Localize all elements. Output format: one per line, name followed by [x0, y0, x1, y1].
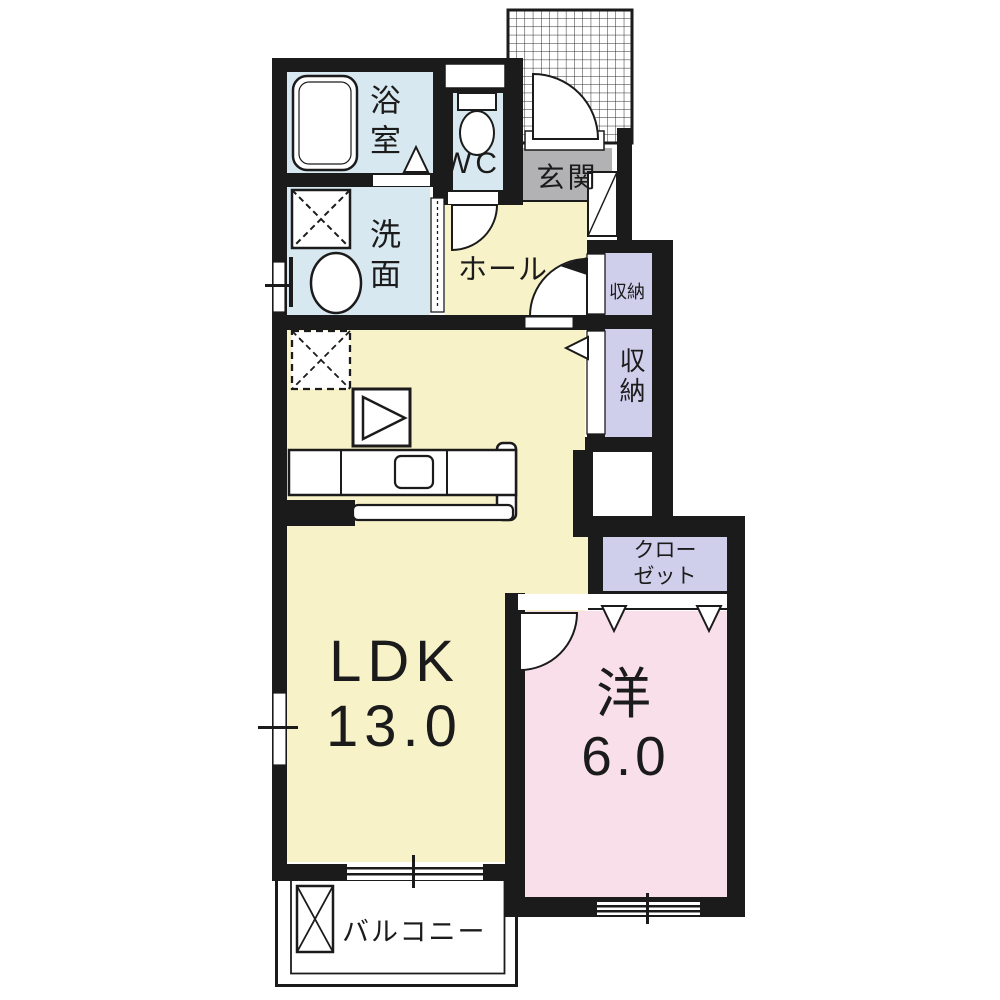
entrance-label: 玄関 [523, 156, 612, 196]
wall-wc-right [503, 58, 523, 205]
western-label-name: 洋 [533, 664, 718, 726]
window-tick [412, 855, 415, 888]
wall-storage-bottom [585, 437, 652, 452]
washing-machine-space-icon [292, 190, 350, 248]
floor-plan: 浴室 WC 玄関 洗面 ホール 収納 収納 クロー ゼット LDK 13.0 洋… [0, 0, 1000, 1000]
sink-icon [395, 456, 433, 488]
closet-label-line2: ゼット [601, 564, 729, 590]
storage-lower-label: 収納 [613, 347, 650, 407]
refrigerator-space-icon [292, 331, 350, 389]
hall-label: ホール [458, 246, 548, 288]
bathtub-icon [293, 76, 357, 170]
wc-door-gap [448, 192, 498, 204]
hall-door-gap [525, 317, 573, 328]
washroom-label: 洗面 [360, 218, 405, 298]
western-label: 洋 6.0 [533, 664, 718, 787]
wall-entrance-right [617, 128, 632, 245]
ldk-room-patch [573, 537, 590, 595]
bath-door-gap [373, 175, 430, 186]
ldk-label: LDK 13.0 [292, 630, 497, 760]
wall-storage-divider [600, 315, 652, 329]
closet-label: クロー ゼット [601, 538, 729, 591]
wall-closet-bottom-line [588, 591, 727, 594]
ldk-label-size: 13.0 [292, 695, 497, 760]
wall-kitchen-stub [287, 500, 355, 526]
wall-right-lower [727, 537, 745, 917]
wall-closet-top [573, 516, 745, 537]
washroom-window-tick [265, 284, 291, 287]
ldk-label-name: LDK [292, 630, 497, 695]
accordion-door-icon [431, 198, 444, 312]
appliance-box-icon [353, 389, 410, 446]
storage-upper-label: 収納 [601, 278, 653, 304]
wall-ldk-right [573, 450, 593, 520]
bath-label: 浴室 [360, 84, 405, 164]
western-label-size: 6.0 [533, 726, 718, 788]
wall-right-upper [652, 240, 673, 520]
storage-lower-door [587, 331, 605, 434]
wc-window-icon [445, 64, 505, 88]
balcony-label: バルコニー [342, 910, 486, 949]
toilet-icon [458, 93, 496, 155]
wc-label: WC [443, 147, 501, 181]
window-tick [646, 893, 649, 924]
closet-label-line1: クロー [601, 538, 729, 564]
